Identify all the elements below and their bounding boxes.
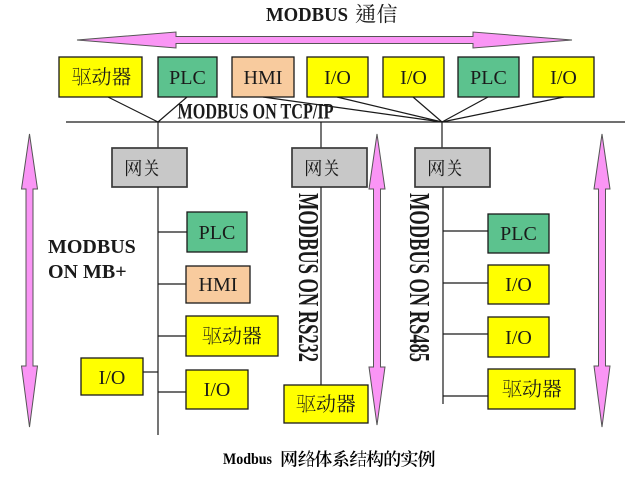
svg-text:PLC: PLC — [470, 67, 507, 89]
svg-text:MODBUS ON TCP/IP: MODBUS ON TCP/IP — [178, 99, 334, 124]
svg-text:MODBUS: MODBUS — [48, 236, 136, 258]
svg-text:I/O: I/O — [505, 327, 532, 349]
svg-text:HMI: HMI — [244, 67, 283, 89]
svg-text:PLC: PLC — [199, 222, 236, 244]
svg-text:I/O: I/O — [99, 367, 126, 389]
svg-text:I/O: I/O — [550, 67, 577, 89]
svg-text:MODBUS ON RS485: MODBUS ON RS485 — [403, 193, 435, 362]
svg-text:HMI: HMI — [199, 274, 238, 296]
svg-text:ON MB+: ON MB+ — [48, 261, 127, 283]
svg-text:MODBUS ON RS232: MODBUS ON RS232 — [292, 193, 324, 362]
svg-text:I/O: I/O — [324, 67, 351, 89]
svg-text:I/O: I/O — [400, 67, 427, 89]
svg-text:Modbus: Modbus — [223, 451, 272, 468]
svg-text:I/O: I/O — [204, 379, 231, 401]
svg-text:MODBUS: MODBUS — [266, 4, 348, 26]
svg-text:PLC: PLC — [500, 223, 537, 245]
svg-text:PLC: PLC — [169, 67, 206, 89]
svg-text:I/O: I/O — [505, 274, 532, 296]
